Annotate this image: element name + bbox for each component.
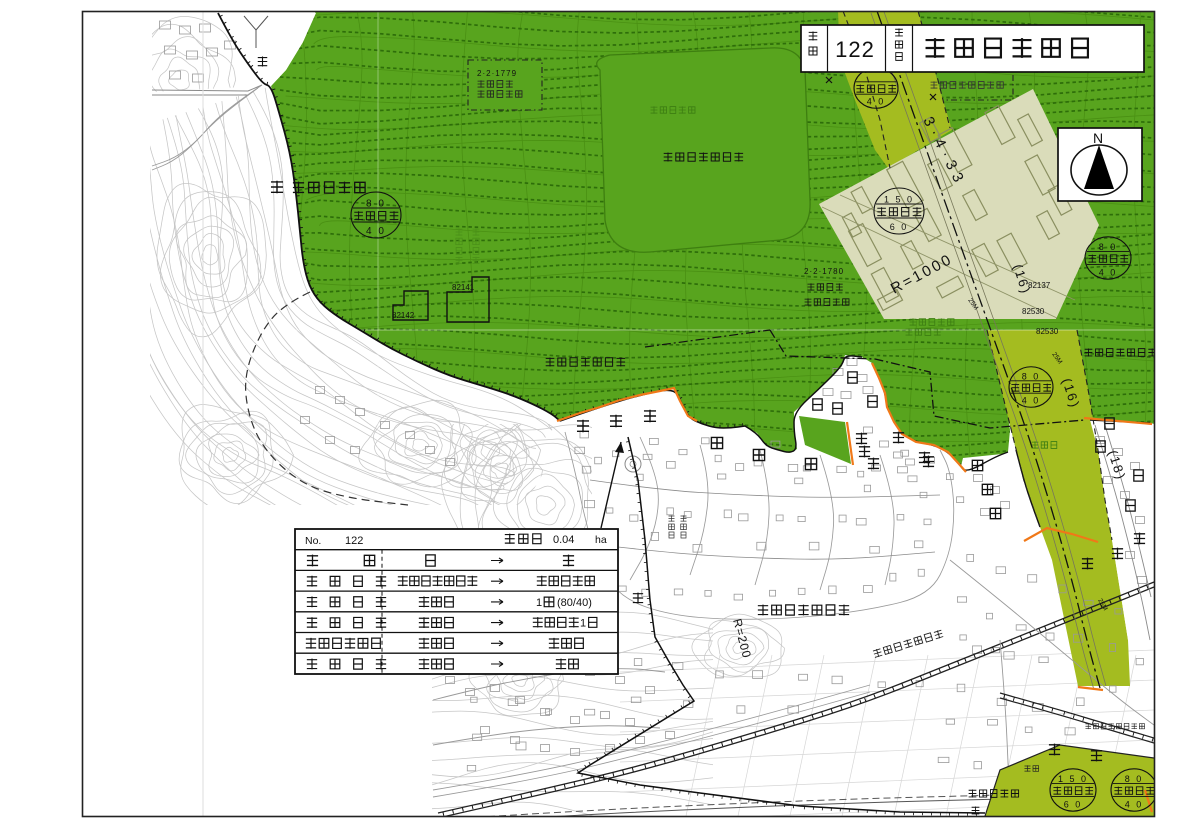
- svg-text:4 0: 4 0: [366, 226, 386, 237]
- svg-text:122: 122: [345, 535, 363, 547]
- svg-text:0.04: 0.04: [553, 534, 574, 546]
- svg-text:(80/40): (80/40): [557, 597, 592, 609]
- svg-text:4 0: 4 0: [1022, 396, 1041, 406]
- svg-text:122: 122: [835, 37, 875, 62]
- svg-text:4 0: 4 0: [867, 97, 886, 107]
- svg-text:2·2·1780: 2·2·1780: [804, 267, 844, 276]
- svg-text:8 0: 8 0: [1099, 242, 1118, 252]
- svg-text:8 0: 8 0: [1125, 774, 1144, 784]
- svg-text:1 5 0: 1 5 0: [1058, 774, 1088, 784]
- svg-text:1: 1: [536, 597, 542, 609]
- svg-text:6 0: 6 0: [1064, 799, 1083, 809]
- svg-text:N: N: [1093, 130, 1103, 146]
- svg-text:82530: 82530: [1022, 307, 1045, 316]
- svg-text:No.: No.: [305, 535, 321, 547]
- svg-text:ha: ha: [595, 534, 607, 546]
- svg-text:2·2·1779: 2·2·1779: [477, 69, 517, 78]
- svg-text:1: 1: [580, 618, 586, 630]
- svg-text:82141: 82141: [452, 283, 475, 292]
- svg-text:8 0: 8 0: [1022, 371, 1041, 381]
- svg-text:82530: 82530: [1036, 327, 1059, 336]
- svg-text:4 0: 4 0: [1125, 799, 1144, 809]
- svg-text:1 5 0: 1 5 0: [884, 194, 914, 204]
- svg-text:82142: 82142: [392, 311, 415, 320]
- svg-text:4 0: 4 0: [1099, 267, 1118, 277]
- svg-text:6 0: 6 0: [890, 222, 909, 232]
